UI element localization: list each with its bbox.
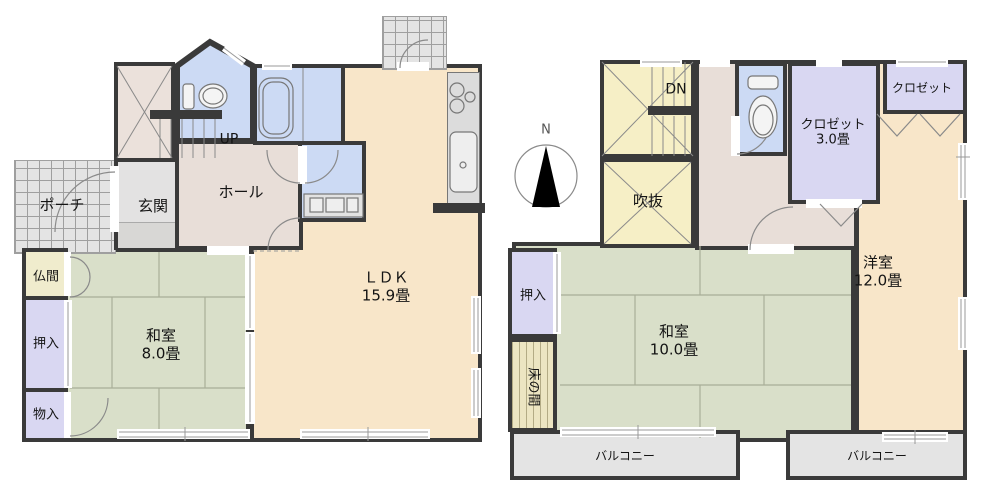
toilet-1f-icon bbox=[183, 84, 227, 109]
label-washitsu-1f-size: 8.0畳 bbox=[142, 345, 181, 363]
label-yoshitsu-name: 洋室 bbox=[863, 253, 893, 271]
label-washitsu-2f: 和室 10.0畳 bbox=[650, 323, 698, 358]
room-stairs-1f bbox=[114, 62, 175, 162]
label-closet-3jo: クロゼット 3.0畳 bbox=[800, 118, 865, 149]
label-closet-3jo-size: 3.0畳 bbox=[800, 133, 865, 148]
label-porch: ポーチ bbox=[39, 197, 84, 215]
label-washitsu-2f-name: 和室 bbox=[659, 322, 689, 340]
label-compass-north: N bbox=[541, 122, 551, 137]
floorplan-canvas: ポーチ 玄関 ホール UP 仏間 押入 物入 和室 8.0畳 ＬＤＫ 15.9畳… bbox=[0, 0, 999, 492]
label-monoire: 物入 bbox=[33, 407, 59, 422]
room-bathroom bbox=[253, 64, 345, 145]
label-closet-3jo-name: クロゼット bbox=[800, 118, 865, 133]
label-hall-1f: ホール bbox=[218, 184, 263, 202]
label-washitsu-2f-size: 10.0畳 bbox=[650, 341, 698, 359]
label-balcony-right: バルコニー bbox=[847, 449, 907, 463]
label-stairs-up: UP bbox=[220, 132, 239, 149]
label-washitsu-1f: 和室 8.0畳 bbox=[142, 327, 181, 362]
label-butsuma: 仏間 bbox=[33, 269, 59, 284]
backdoor-porch bbox=[382, 16, 447, 70]
kitchen-counter bbox=[447, 72, 480, 207]
label-closet-small: クロゼット bbox=[892, 81, 952, 95]
label-genkan: 玄関 bbox=[138, 198, 168, 216]
room-washroom bbox=[298, 141, 366, 222]
label-oshiire-1f: 押入 bbox=[33, 336, 59, 351]
label-tokonoma: 床の間 bbox=[525, 367, 540, 406]
label-yoshitsu: 洋室 12.0畳 bbox=[854, 254, 902, 289]
label-oshiire-2f: 押入 bbox=[520, 288, 546, 303]
label-ldk-size: 15.9畳 bbox=[362, 287, 410, 305]
label-balcony-left: バルコニー bbox=[595, 449, 655, 463]
label-yoshitsu-size: 12.0畳 bbox=[854, 272, 902, 290]
room-stairs-2f bbox=[600, 60, 695, 158]
label-stairs-dn: DN bbox=[665, 82, 686, 99]
room-toilet-1f bbox=[177, 42, 253, 141]
label-atrium: 吹抜 bbox=[633, 193, 663, 211]
room-toilet-2f bbox=[735, 62, 787, 156]
label-ldk: ＬＤＫ 15.9畳 bbox=[362, 269, 410, 304]
compass bbox=[515, 145, 577, 207]
label-ldk-name: ＬＤＫ bbox=[363, 268, 408, 286]
label-washitsu-1f-name: 和室 bbox=[146, 326, 176, 344]
